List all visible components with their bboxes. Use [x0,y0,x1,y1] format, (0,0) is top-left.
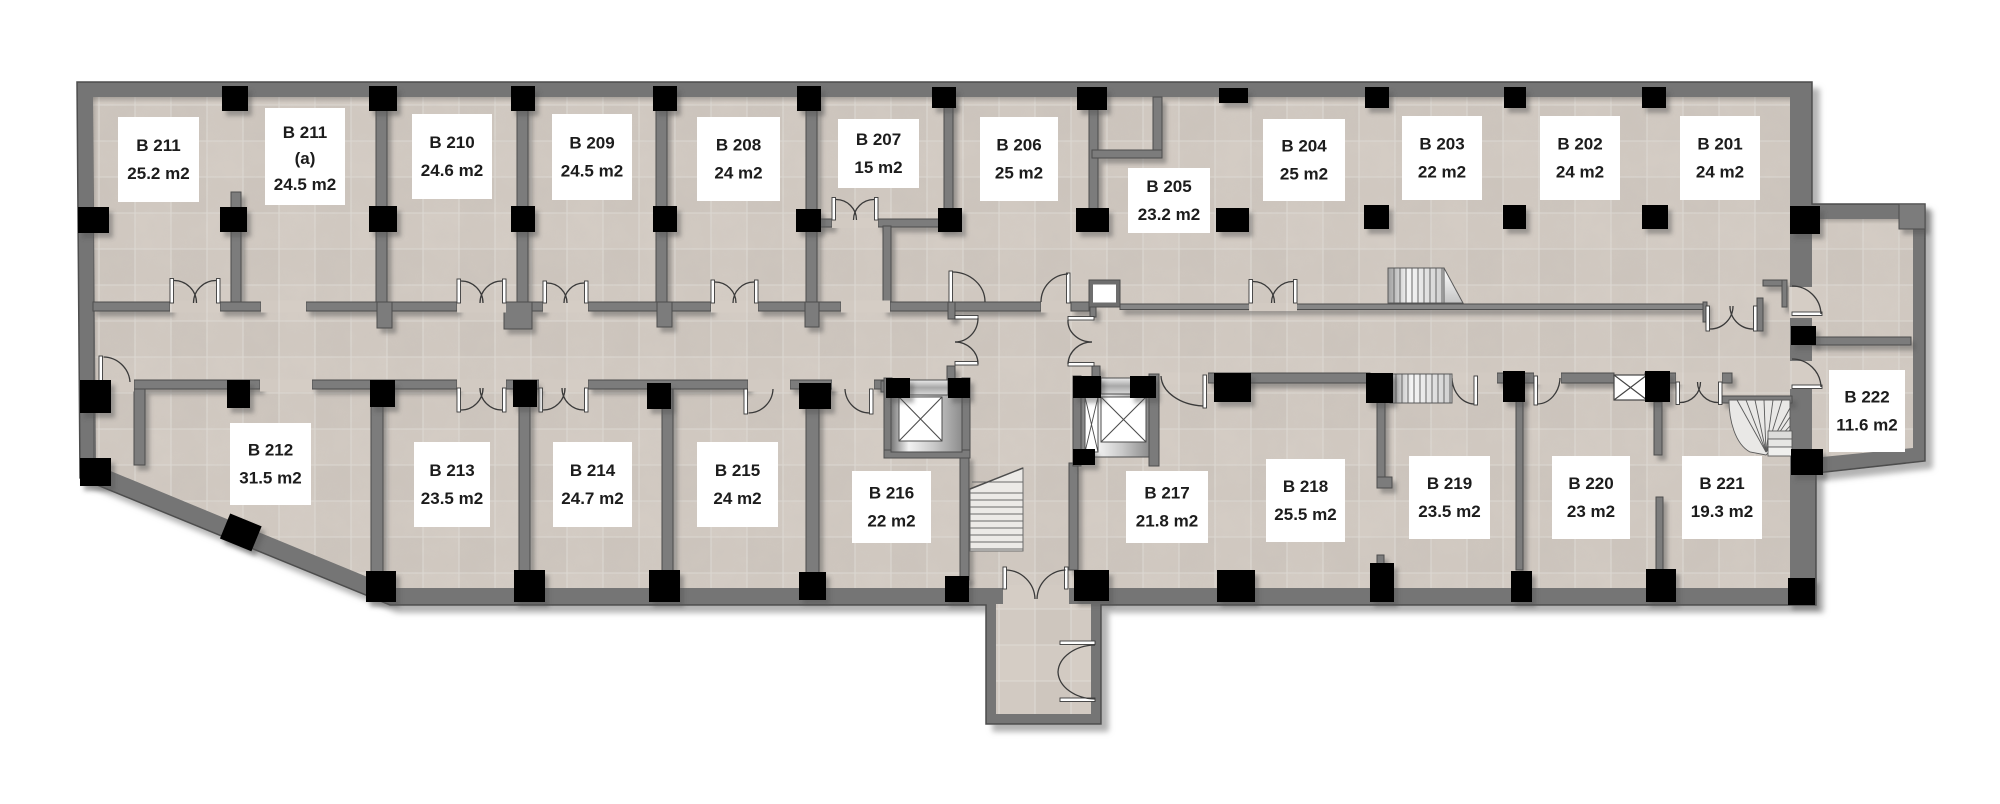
svg-text:B 209: B 209 [569,134,614,153]
svg-text:B 202: B 202 [1557,135,1602,154]
svg-text:B 208: B 208 [716,136,761,155]
svg-text:24.5 m2: 24.5 m2 [561,162,623,181]
svg-text:15 m2: 15 m2 [854,158,902,177]
svg-text:B 211: B 211 [136,136,180,155]
svg-text:19.3 m2: 19.3 m2 [1691,502,1753,521]
svg-text:24.7 m2: 24.7 m2 [561,489,623,508]
svg-text:B 216: B 216 [869,484,914,503]
svg-text:B 217: B 217 [1144,484,1189,503]
svg-text:B 207: B 207 [856,130,901,149]
svg-text:25.5 m2: 25.5 m2 [1274,505,1336,524]
svg-text:B 222: B 222 [1844,388,1889,407]
svg-text:B 203: B 203 [1419,135,1464,154]
svg-text:B 214: B 214 [570,461,616,480]
svg-text:B 220: B 220 [1568,474,1613,493]
svg-text:25.2 m2: 25.2 m2 [127,164,189,183]
svg-text:B 215: B 215 [715,461,760,480]
svg-text:11.6 m2: 11.6 m2 [1836,416,1897,435]
svg-text:23.5 m2: 23.5 m2 [1418,502,1480,521]
svg-text:22 m2: 22 m2 [1418,163,1466,182]
svg-text:23 m2: 23 m2 [1567,502,1615,521]
svg-text:22 m2: 22 m2 [867,512,915,531]
svg-text:25 m2: 25 m2 [1280,165,1328,184]
svg-text:23.2 m2: 23.2 m2 [1138,205,1200,224]
svg-text:(a): (a) [295,149,316,168]
svg-text:B 221: B 221 [1699,474,1744,493]
svg-text:24 m2: 24 m2 [713,489,761,508]
svg-text:24.6 m2: 24.6 m2 [421,161,483,180]
svg-text:B 213: B 213 [429,461,474,480]
svg-text:23.5 m2: 23.5 m2 [421,489,483,508]
svg-text:25 m2: 25 m2 [995,164,1043,183]
svg-text:B 210: B 210 [429,133,474,152]
svg-text:B 206: B 206 [996,136,1041,155]
svg-text:21.8 m2: 21.8 m2 [1136,512,1198,531]
svg-text:B 219: B 219 [1427,474,1472,493]
svg-text:B 201: B 201 [1697,135,1742,154]
svg-text:B 205: B 205 [1146,177,1191,196]
svg-text:24 m2: 24 m2 [1556,163,1604,182]
svg-text:24 m2: 24 m2 [1696,163,1744,182]
svg-text:B 212: B 212 [248,441,293,460]
svg-text:31.5 m2: 31.5 m2 [239,469,301,488]
svg-text:B 211: B 211 [283,123,327,142]
svg-text:24.5 m2: 24.5 m2 [274,175,336,194]
svg-text:B 204: B 204 [1281,137,1327,156]
svg-text:24 m2: 24 m2 [714,164,762,183]
svg-text:B 218: B 218 [1283,477,1328,496]
